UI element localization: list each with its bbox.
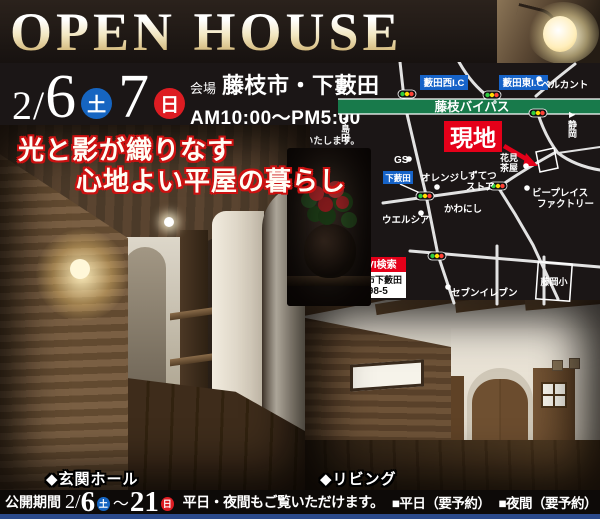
saturday-badge: 土: [81, 88, 112, 119]
east-arrow-icon: ▶: [569, 110, 576, 119]
lamp-globe: [543, 16, 577, 52]
sunday-badge: 日: [154, 88, 185, 119]
catch-copy-line2: 心地よい平屋の暮らし: [76, 161, 346, 198]
living-room-photo: [305, 300, 600, 490]
map-label-bplace2: ファクトリー: [537, 199, 594, 210]
footer-bar: 公開期間 2/ 6 土 〜 21 日 平日・夜間もご覧いただけます。 ■平日（要…: [0, 490, 600, 519]
map-label-belcanto: ベルカント: [541, 80, 588, 91]
map-label-seven: セブンイレブン: [451, 287, 518, 299]
bypass-label: 藤枝バイパス: [434, 99, 510, 114]
wall-lamp-photo: [497, 0, 600, 63]
map-label-kawanishi: かわにし: [444, 204, 482, 215]
header-bar: OPEN HOUSE: [0, 0, 600, 63]
map-label-shizutetsu1: しずてつ: [459, 170, 497, 182]
period-end-day: 21: [130, 488, 159, 517]
date-day-7: 7: [118, 69, 149, 126]
school-label: 藤岡小: [540, 276, 567, 287]
weekday-reservation: ■平日（要予約）: [392, 492, 491, 512]
access-map: 藤枝バイパス 藪田西I.C 藪田東I.C 下藪田 現地 藤岡小 NAVI検索 藤…: [338, 62, 600, 306]
map-label-shimada: 島田: [340, 123, 350, 143]
map-label-bplace1: ビープレイス: [532, 187, 588, 199]
site-label: 現地: [450, 125, 496, 151]
viewing-message: 平日・夜間もご覧いただけます。: [183, 492, 384, 512]
night-reservation: ■夜間（要予約）: [498, 492, 597, 512]
open-period-row: 公開期間 2/ 6 土 〜 21 日 平日・夜間もご覧いただけます。 ■平日（要…: [5, 490, 597, 514]
open-period-label: 公開期間: [5, 492, 61, 512]
living-caption: ◆リビング: [320, 468, 397, 489]
shimoyabuta-label: 下藪田: [385, 173, 411, 183]
saturday-badge-small: 土: [97, 497, 110, 511]
venue-label: 会場: [190, 78, 216, 97]
page-title: OPEN HOUSE: [10, 1, 403, 63]
map-label-hanami2: 茶屋: [499, 162, 518, 173]
map-label-welcia: ウエルシア: [382, 215, 430, 226]
ic-west-label: 藪田西I.C: [424, 77, 465, 89]
sunday-badge-small: 日: [161, 497, 174, 511]
map-label-shizuoka: 静岡: [567, 119, 577, 139]
map-label-shizutetsu2: ストア: [466, 182, 495, 193]
map-label-gs: GS: [394, 155, 409, 166]
period-start-day: 6: [81, 488, 96, 517]
date-day-6: 6: [45, 69, 76, 126]
school-box: 藤岡小: [536, 262, 572, 301]
bypass-band: 藤枝バイパス: [338, 99, 600, 114]
pointer-line: [400, 184, 420, 193]
photo-vignette: [305, 300, 600, 490]
date-month: 2/: [12, 86, 45, 126]
open-house-flyer: OPEN HOUSE 2/ 6 土 7 日 会場 藤枝市・下藪田 AM10:00…: [0, 0, 600, 519]
tilde: 〜: [113, 490, 129, 514]
footer-blue-strip: [0, 514, 600, 519]
event-dates: 2/ 6 土 7 日: [12, 66, 191, 126]
map-label-hanami1: 花見: [500, 152, 518, 163]
period-month: 2/: [65, 491, 81, 514]
west-arrow-icon: ◀: [342, 114, 349, 123]
map-label-orange: オレンジ: [421, 173, 460, 184]
